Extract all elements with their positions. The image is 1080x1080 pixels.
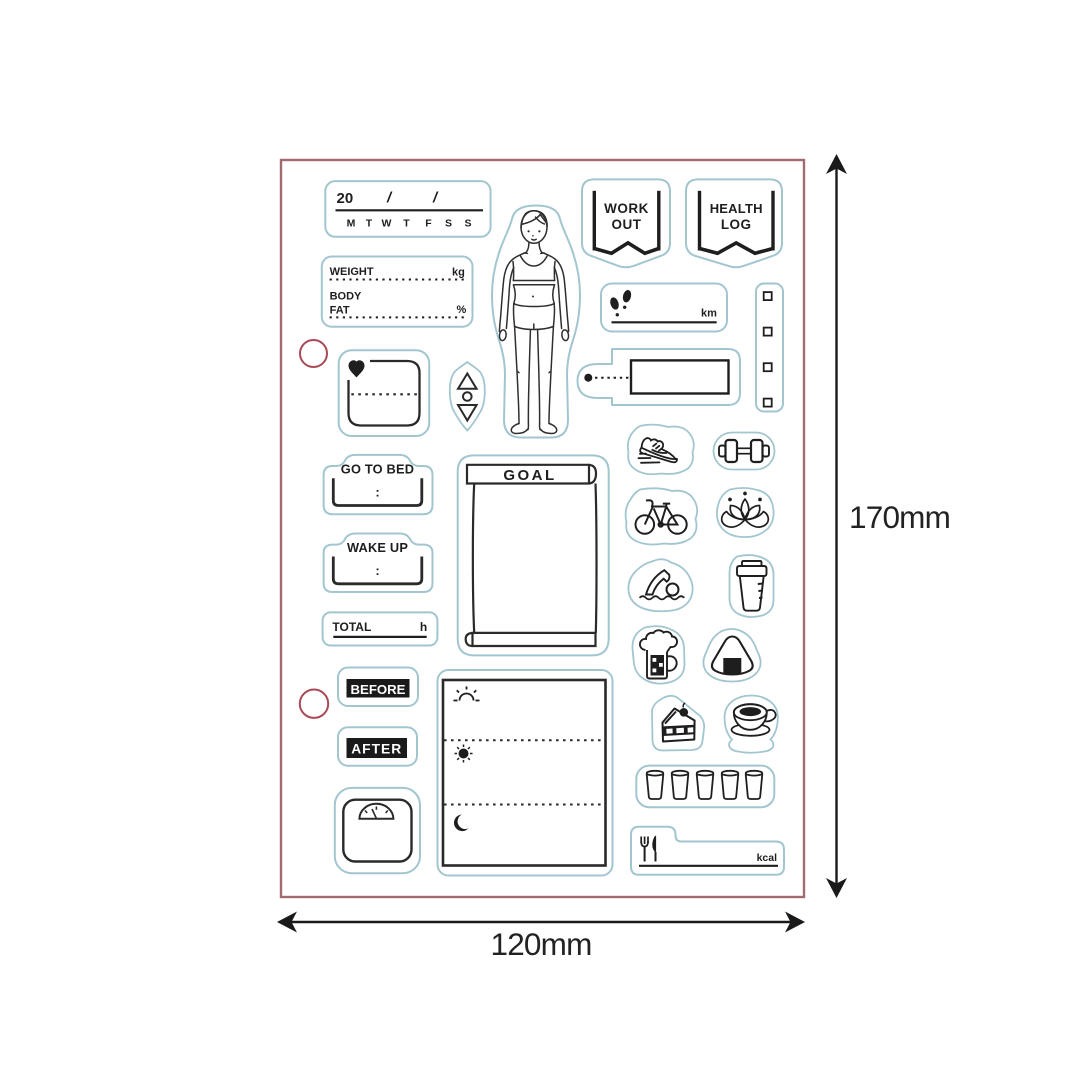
svg-text:S: S (464, 218, 471, 230)
svg-text:%: % (457, 304, 467, 316)
svg-text:M: M (347, 218, 356, 230)
svg-text::: : (375, 563, 379, 578)
svg-text:km: km (701, 308, 717, 320)
svg-text:S: S (445, 218, 452, 230)
svg-text:WEIGHT: WEIGHT (330, 266, 374, 278)
svg-text:WAKE UP: WAKE UP (347, 540, 408, 555)
svg-text:WORK: WORK (604, 201, 649, 216)
svg-text:W: W (382, 218, 392, 230)
svg-text:kg: kg (452, 267, 465, 279)
svg-text:kcal: kcal (757, 852, 778, 864)
svg-text:LOG: LOG (721, 217, 752, 232)
svg-text:BEFORE: BEFORE (351, 682, 406, 697)
svg-text:20: 20 (337, 190, 354, 207)
svg-text:GOAL: GOAL (503, 467, 556, 484)
svg-text:GO TO BED: GO TO BED (341, 462, 414, 477)
svg-text:OUT: OUT (612, 217, 642, 232)
svg-text:FAT: FAT (330, 304, 350, 316)
svg-text:AFTER: AFTER (351, 742, 402, 757)
svg-text:TOTAL: TOTAL (332, 620, 371, 634)
svg-text:T: T (403, 218, 410, 230)
svg-text:170mm: 170mm (849, 499, 950, 535)
svg-text:F: F (425, 218, 432, 230)
svg-text:h: h (420, 620, 427, 634)
svg-text:120mm: 120mm (490, 926, 591, 962)
svg-text:HEALTH: HEALTH (710, 201, 763, 216)
svg-text:T: T (366, 218, 373, 230)
svg-text::: : (375, 485, 379, 500)
svg-text:BODY: BODY (330, 291, 362, 303)
